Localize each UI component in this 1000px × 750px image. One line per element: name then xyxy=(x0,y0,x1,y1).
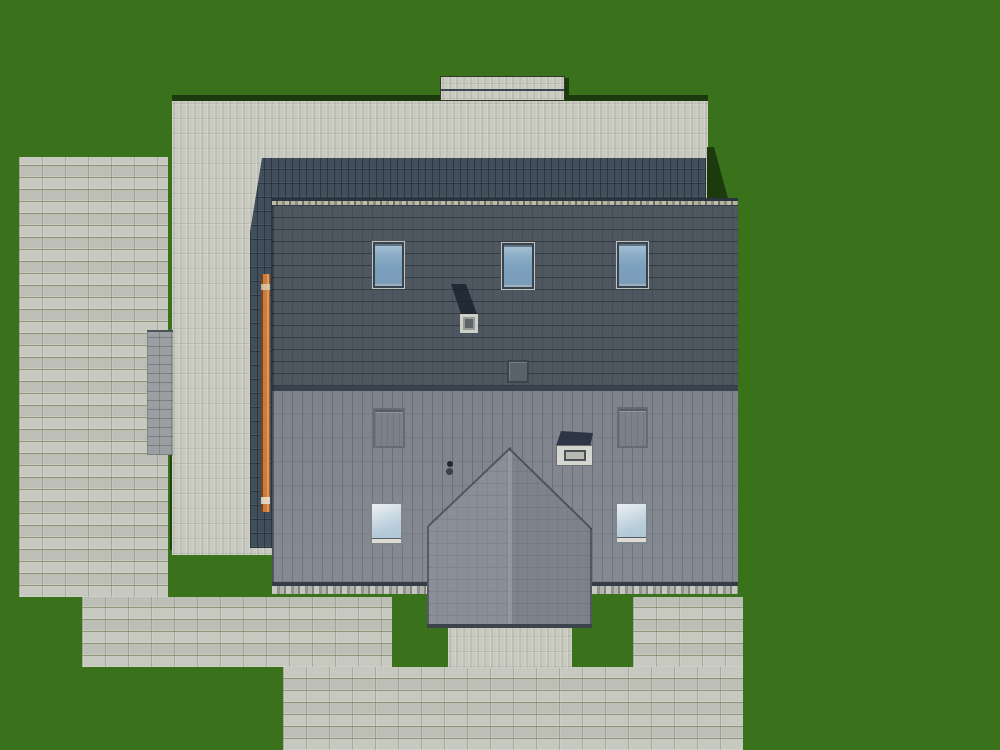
roof-vent xyxy=(507,360,529,383)
porch-ridge xyxy=(508,451,512,624)
main-roof-left-edge xyxy=(272,205,274,582)
roof-window-gray-2 xyxy=(617,407,648,448)
porch-floor-paving xyxy=(448,628,572,668)
porch-side-left xyxy=(427,527,429,628)
skylight-upper-2 xyxy=(502,243,534,289)
skylight-lower-1 xyxy=(370,502,403,545)
gutter-right xyxy=(592,586,738,594)
bottom-left-walkway xyxy=(82,597,392,667)
garden-steps xyxy=(147,330,173,455)
chimney-1-cap xyxy=(460,314,478,333)
pergola-beam xyxy=(261,274,270,512)
porch-side-right xyxy=(590,528,592,628)
right-walkway xyxy=(633,597,743,667)
porch-roof xyxy=(427,448,592,628)
lawn-background xyxy=(0,0,1000,750)
roof-window-gray-1 xyxy=(373,408,405,448)
gutter-left xyxy=(272,586,427,594)
top-utility-block-joint xyxy=(441,89,564,91)
top-utility-block xyxy=(440,76,565,101)
skylight-upper-3 xyxy=(617,242,648,288)
terrace-edge-shadow xyxy=(170,455,172,550)
left-plaza-paving xyxy=(19,157,168,597)
skylight-lower-2 xyxy=(615,502,648,544)
skylight-upper-1 xyxy=(373,242,404,288)
house-cast-shadow xyxy=(705,147,729,202)
beam-bracket-bottom xyxy=(261,497,270,504)
bottom-paving-area xyxy=(283,667,743,750)
beam-bracket-top xyxy=(261,284,270,290)
main-roof-upper-slope xyxy=(272,205,738,386)
top-block-shadow xyxy=(565,78,569,101)
